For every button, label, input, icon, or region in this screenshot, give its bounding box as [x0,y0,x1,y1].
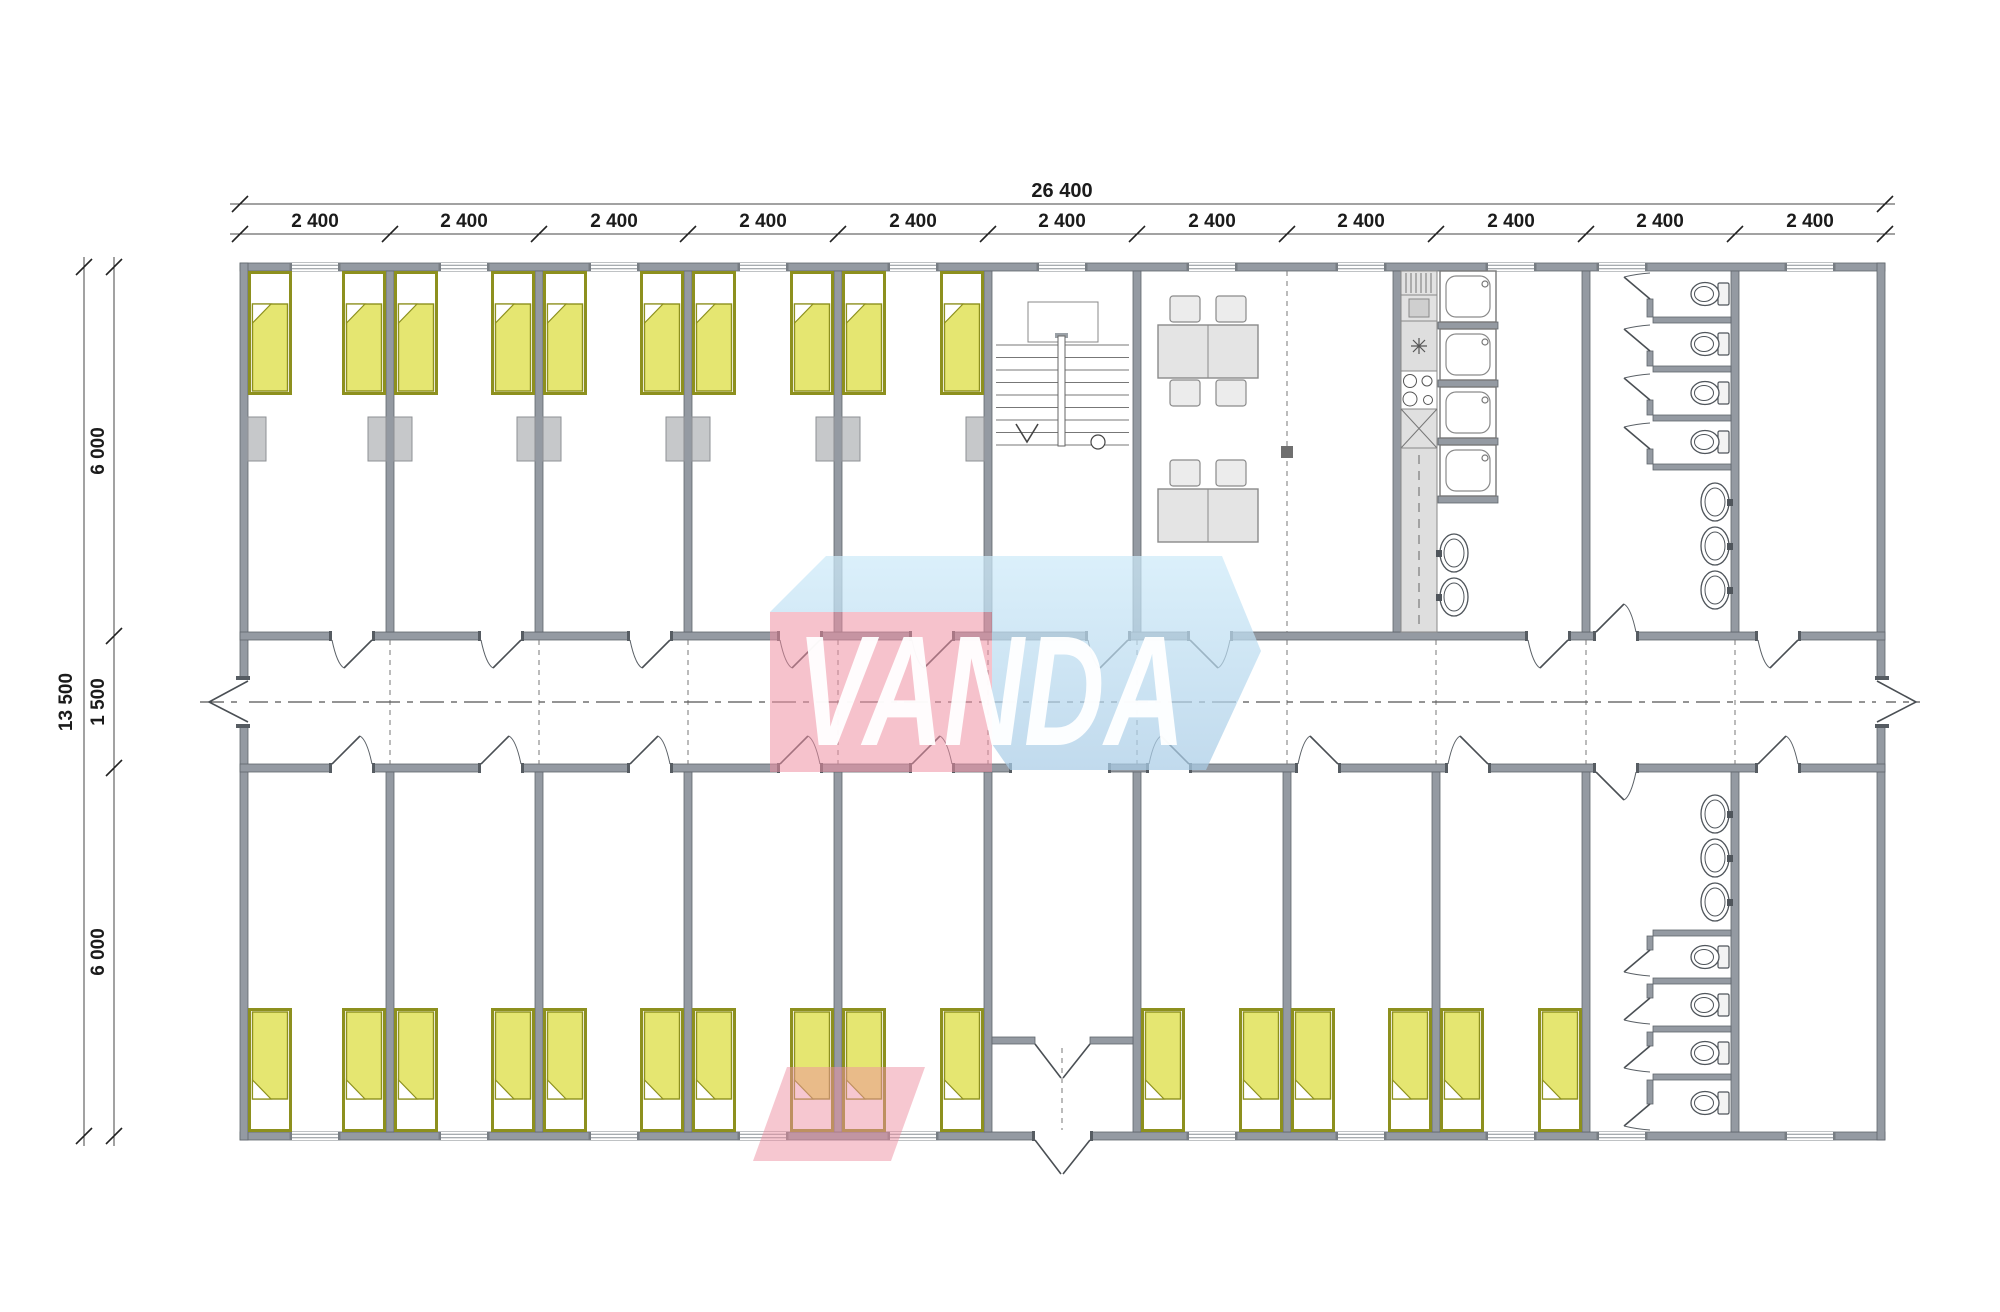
toilet-icon [1691,994,1729,1017]
stall-door-icon [1624,950,1650,1130]
lockers-top [248,417,984,461]
dimension-label-total-width: 26 400 [1031,180,1092,202]
bed-icon [1442,1010,1483,1131]
dimension-label-segment: 6 000 [88,427,109,475]
bed-icon [844,273,885,394]
bed-icon [942,1010,983,1131]
washbasin-icon [1436,534,1468,572]
washbasin-icon [1701,527,1733,565]
bed-icon [344,273,385,394]
shower-stall-icon [1440,445,1496,496]
toilet-icon [1691,333,1729,356]
bed-icon [250,1010,291,1131]
window-icon [1187,263,1238,272]
window-icon [290,1132,341,1141]
door-icon [1295,736,1341,773]
floor-plan-canvas: 26 400 2 400 2 400 2 400 2 400 2 400 2 4… [0,0,2000,1312]
top-dimension: 26 400 2 400 2 400 2 400 2 400 2 400 2 4… [230,180,1895,242]
locker-icon [842,417,860,461]
locker-icon [517,417,535,461]
dimension-label-module: 2 400 [440,211,488,232]
dining-area [1158,296,1293,542]
window-icon [1336,1132,1387,1141]
window-icon [439,263,490,272]
door-icon [329,736,375,773]
shower-stall-icon [1440,387,1496,438]
locker-icon [816,417,834,461]
dimension-label-module: 2 400 [1188,211,1236,232]
bed-icon [942,273,983,394]
dimension-label-total-height: 13 500 [56,673,77,731]
beds-top [250,273,983,394]
locker-icon [666,417,684,461]
dimension-label-module: 2 400 [1636,211,1684,232]
window-icon [1336,263,1387,272]
chair-icon [1216,296,1246,322]
bed-icon [396,273,437,394]
window-icon [439,1132,490,1141]
bed-icon [396,1010,437,1131]
bed-icon [545,273,586,394]
door-icon [1445,736,1491,773]
window-icon [1486,263,1537,272]
window-icon [1187,1132,1238,1141]
bed-icon [792,273,833,394]
bed-icon [642,273,683,394]
door-icon [478,736,524,773]
bed-icon [1390,1010,1431,1131]
bed-icon [1540,1010,1581,1131]
door-icon [1755,736,1801,773]
chair-icon [1170,380,1200,406]
washbasin-icon [1701,571,1733,609]
window-icon [1785,1132,1836,1141]
bed-icon [1293,1010,1334,1131]
locker-icon [248,417,266,461]
dimension-label-module: 2 400 [1786,211,1834,232]
column-marker-icon [1281,446,1293,458]
dimension-label-module: 2 400 [889,211,937,232]
window-icon [1597,1132,1648,1141]
bed-icon [1241,1010,1282,1131]
toilet-icon [1691,946,1729,969]
bed-icon [694,1010,735,1131]
dimension-label-module: 2 400 [739,211,787,232]
toilet-icon [1691,431,1729,454]
bed-icon [642,1010,683,1131]
dimension-label-module: 2 400 [590,211,638,232]
chair-icon [1170,460,1200,486]
floor-plan-drawing: 26 400 2 400 2 400 2 400 2 400 2 400 2 4… [0,0,2000,1312]
window-icon [290,263,341,272]
locker-icon [543,417,561,461]
door-icon [1755,631,1801,668]
shower-stall-icon [1440,271,1496,322]
stall-door-icon [1624,273,1650,449]
shower-stall-icon [1440,329,1496,380]
dimension-label-module: 2 400 [291,211,339,232]
locker-icon [368,417,386,461]
window-icon [1486,1132,1537,1141]
washbasin-icon [1701,883,1733,921]
toilet-icon [1691,283,1729,306]
dimension-label-module: 2 400 [1487,211,1535,232]
kitchen-unit-icons [1401,271,1437,632]
dimension-label-segment: 1 500 [88,678,109,726]
watermark-text: VANDA [797,604,1185,779]
bed-icon [493,1010,534,1131]
door-icon [1593,763,1639,800]
washbasin-icon [1701,839,1733,877]
door-icon [478,631,524,668]
washbasin-icon [1701,795,1733,833]
door-icon [1593,604,1639,641]
bed-icon [545,1010,586,1131]
dimension-label-module: 2 400 [1337,211,1385,232]
window-icon [589,1132,640,1141]
toilet-icon [1691,382,1729,405]
bed-icon [493,273,534,394]
window-icon [738,263,789,272]
chair-icon [1216,460,1246,486]
washbasin-icon [1436,578,1468,616]
bed-icon [250,273,291,394]
window-icon [1597,263,1648,272]
bed-icon [694,273,735,394]
chair-icon [1170,296,1200,322]
toilet-icon [1691,1092,1729,1115]
window-icon [589,263,640,272]
bed-icon [344,1010,385,1131]
washbasin-icon [1701,483,1733,521]
window-icon [1037,263,1088,272]
locker-icon [966,417,984,461]
door-icon [627,736,673,773]
toilet-icon [1691,1042,1729,1065]
chair-icon [1216,380,1246,406]
dimension-label-segment: 6 000 [88,928,109,976]
door-icon [1525,631,1571,668]
staircase-icon [996,302,1129,449]
locker-icon [692,417,710,461]
left-dimension: 13 500 6 000 1 500 6 000 [56,257,122,1146]
window-icon [888,263,939,272]
door-icon [329,631,375,668]
window-icon [1785,263,1836,272]
bed-icon [1143,1010,1184,1131]
watermark-pink-fragment [753,1067,925,1161]
dimension-label-module: 2 400 [1038,211,1086,232]
locker-icon [394,417,412,461]
door-icon [627,631,673,668]
